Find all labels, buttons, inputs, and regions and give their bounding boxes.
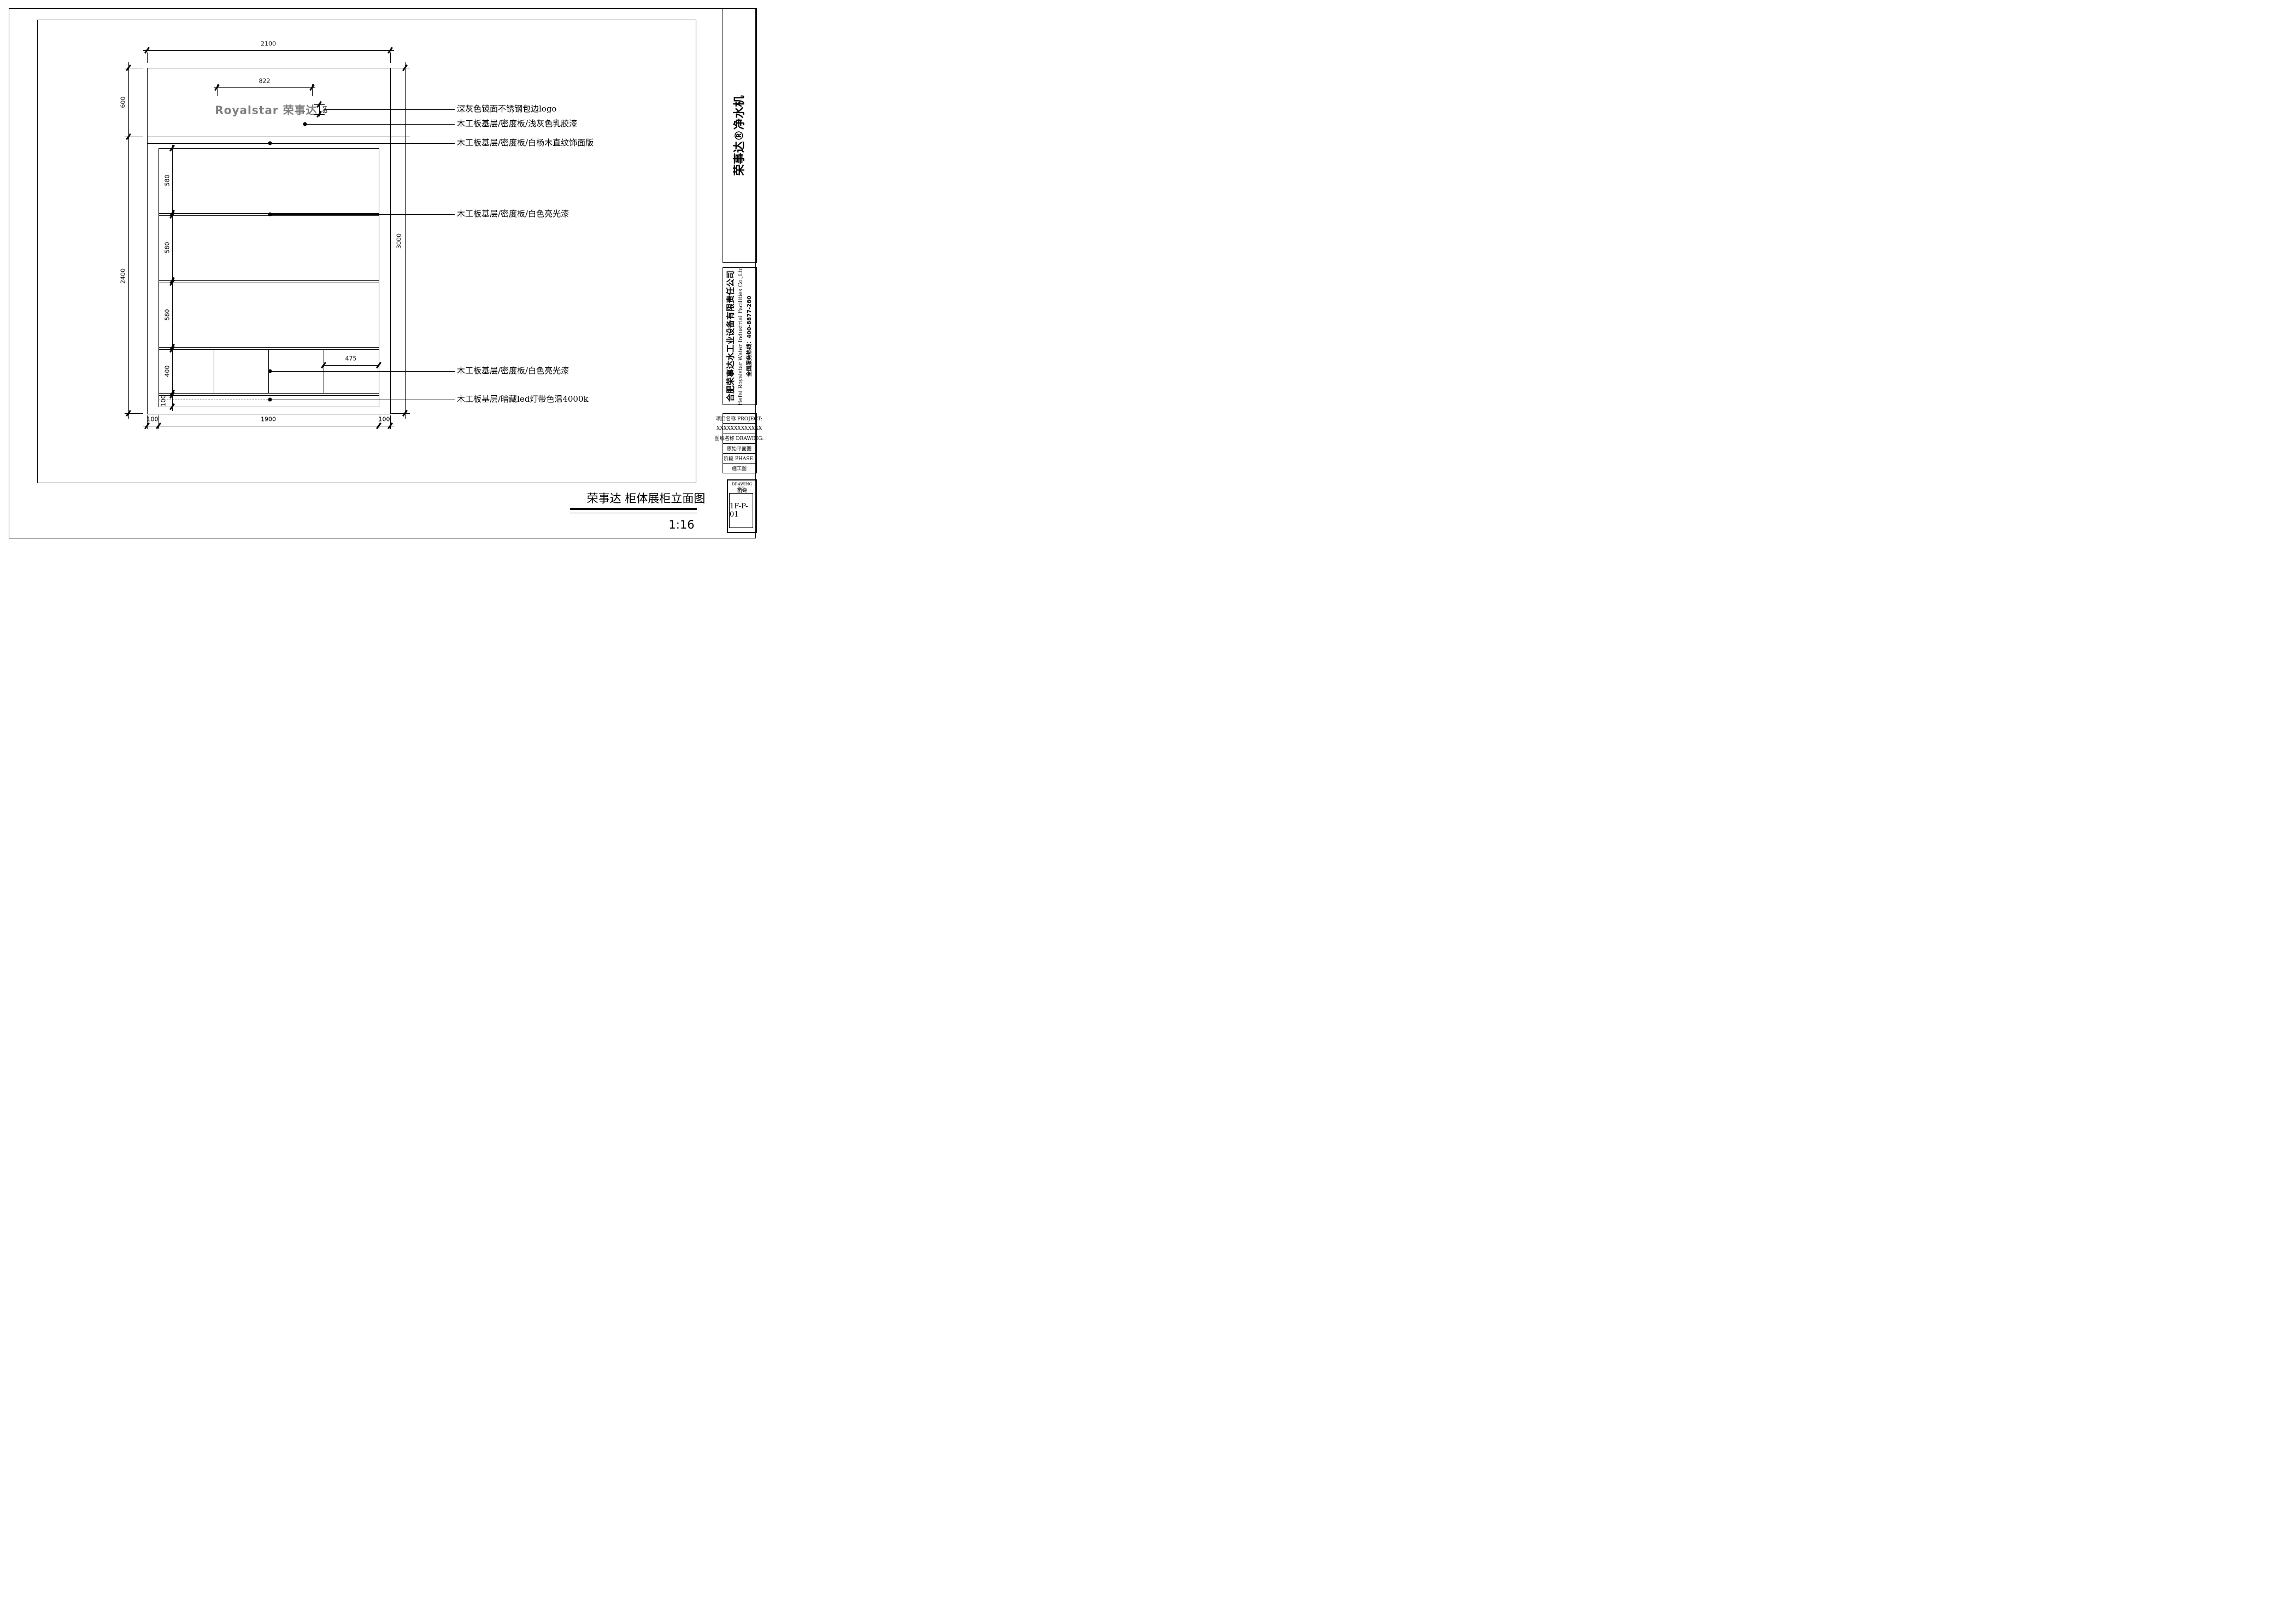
title-underline-thin	[570, 513, 697, 513]
annotation-gloss-paint-2: 木工板基层/密度板/白色亮光漆	[457, 367, 569, 375]
extension-line	[147, 52, 148, 63]
annotation-gloss-paint-1: 木工板基层/密度板/白色亮光漆	[457, 210, 569, 218]
titleblock-row: 施工图	[723, 464, 755, 473]
title-underline-thick	[570, 508, 697, 510]
leader-line	[270, 143, 455, 144]
sidebar-brand-box: 荣事达®净水机	[723, 8, 757, 263]
dimension-line	[324, 365, 379, 366]
titleblock-row: XXXXXXXXXXXXX	[723, 424, 755, 433]
dim-body-height: 2400	[120, 268, 126, 284]
titleblock-row: 原始平面图	[723, 444, 755, 454]
dim-overall-height: 3000	[396, 233, 402, 249]
dim-shelf-1: 580	[165, 175, 171, 186]
dimension-line	[128, 62, 129, 419]
annotation-led-strip: 木工板基层/暗藏led灯带色温4000k	[457, 395, 589, 403]
dim-base-height: 100	[161, 395, 167, 407]
bottom-panel-line	[158, 393, 379, 394]
dim-compartment-width: 475	[345, 356, 357, 362]
leader-line	[305, 124, 455, 125]
annotation-latex-paint: 木工板基层/密度板/浅灰色乳胶漆	[457, 120, 577, 128]
company-name-cn: 合肥荣事达水工业设备有限责任公司	[727, 271, 735, 402]
header-band-line	[147, 137, 390, 137]
sheet-scale: 1:16	[668, 518, 694, 531]
leader-line	[270, 400, 455, 400]
led-strip-dashed-line	[158, 400, 271, 400]
titleblock: 项目名称 PROJECT: XXXXXXXXXXXXX 图纸名称 DRAWING…	[723, 413, 757, 473]
extension-line	[391, 413, 410, 414]
bottom-panel-line	[158, 395, 379, 396]
extension-line	[391, 68, 410, 68]
drawing-sheet: Royalstar 荣事达 2100 822 84 600 2400 3000 …	[0, 0, 765, 541]
annotation-poplar-veneer: 木工板基层/密度板/白杨木直纹饰面版	[457, 139, 594, 147]
dimension-line	[143, 50, 394, 51]
sheet-title: 荣事达 柜体展柜立面图	[587, 490, 706, 506]
dim-bottom-right: 100	[379, 417, 390, 423]
dim-shelf-3: 580	[165, 309, 171, 321]
compartment-divider	[214, 349, 214, 393]
company-name-en: Hefei Royalstar Water Industrial Facilit…	[738, 267, 744, 406]
titleblock-row: 阶段 PHASE:	[723, 454, 755, 464]
leader-line	[324, 109, 455, 110]
shelf-line	[158, 347, 379, 348]
dim-header-height: 600	[120, 97, 126, 108]
titleblock-row: 图纸名称 DRAWING:	[723, 433, 755, 443]
dim-logo-width: 822	[259, 78, 271, 84]
dimension-line	[405, 62, 406, 419]
dim-bottom-left: 100	[147, 417, 158, 423]
sidebar-company-box: 合肥荣事达水工业设备有限责任公司 Hefei Royalstar Water I…	[723, 267, 757, 405]
dim-bottom-span: 1900	[261, 417, 276, 423]
extension-line	[390, 52, 391, 63]
shelf-unit-outline	[158, 148, 379, 407]
sidebar-brand-text: 荣事达®净水机	[733, 96, 745, 176]
leader-line	[270, 371, 455, 372]
titleblock-row: 项目名称 PROJECT:	[723, 414, 755, 424]
royalstar-logo: Royalstar 荣事达	[215, 102, 317, 118]
dimension-line	[143, 426, 394, 426]
drawing-no-value: 1F-P-01	[730, 502, 753, 519]
dim-overall-width: 2100	[261, 41, 276, 47]
drawing-no-box: DRAWING NO. 图号 1F-P-01	[727, 479, 757, 533]
dimension-line	[214, 87, 315, 88]
annotation-logo: 深灰色镜面不锈钢包边logo	[457, 105, 556, 113]
extension-line	[391, 137, 410, 137]
dim-shelf-2: 580	[165, 242, 171, 254]
shelf-line	[158, 283, 379, 283]
shelf-line	[158, 280, 379, 281]
service-hotline: 全国服务热线：400-8877-280	[747, 296, 753, 377]
leader-line	[270, 214, 455, 215]
drawing-no-inner-box: 1F-P-01	[729, 493, 753, 528]
dim-drawer-band: 400	[165, 366, 171, 377]
